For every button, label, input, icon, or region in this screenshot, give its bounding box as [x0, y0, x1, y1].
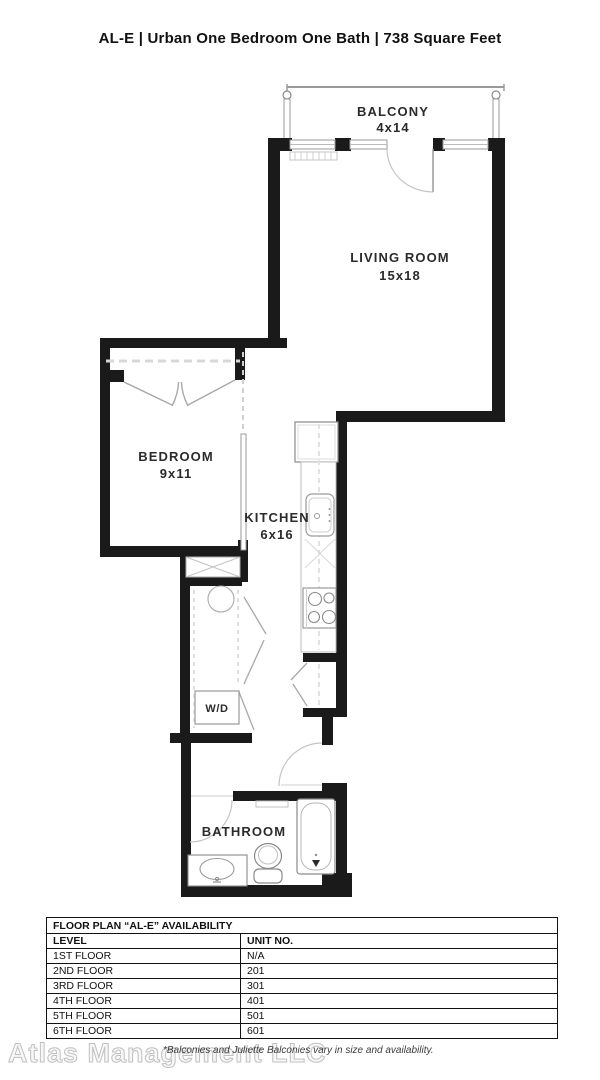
bathroom-label: BATHROOM — [202, 824, 286, 839]
bedroom-label: BEDROOM — [138, 449, 214, 464]
entry-door-swing-arc — [279, 743, 322, 786]
balcony-door-swing-arc — [387, 149, 433, 192]
column-header-unit: UNIT NO. — [241, 934, 558, 949]
pantry-bifold-door — [291, 663, 307, 706]
kitchen-sink — [306, 494, 334, 536]
floor-plan-drawing: BALCONY 4x14 — [0, 0, 600, 910]
stove — [303, 588, 336, 628]
refrigerator — [295, 422, 338, 462]
unit-cell: 601 — [241, 1024, 558, 1039]
windows — [290, 140, 488, 160]
living-room: LIVING ROOM 15x18 — [350, 149, 450, 283]
french-doors — [124, 380, 235, 406]
kitchen-label: KITCHEN — [244, 510, 309, 525]
kitchen: KITCHEN 6x16 — [244, 422, 338, 706]
bathtub — [297, 799, 335, 874]
table-row: 3RD FLOOR 301 — [47, 979, 558, 994]
balcony-dimension: 4x14 — [376, 120, 409, 135]
balcony-label: BALCONY — [357, 104, 429, 119]
level-cell: 3RD FLOOR — [47, 979, 241, 994]
entry-door — [279, 743, 322, 786]
living-room-dimension: 15x18 — [379, 268, 421, 283]
table-title-row: FLOOR PLAN “AL-E” AVAILABILITY — [47, 918, 558, 934]
kitchen-dimension: 6x16 — [260, 527, 293, 542]
table-header-row: LEVEL UNIT NO. — [47, 934, 558, 949]
bathroom: BATHROOM — [188, 796, 335, 886]
water-heater — [208, 586, 234, 612]
balcony-post-icon — [283, 91, 291, 99]
washer-dryer-label: W/D — [205, 703, 228, 715]
living-room-label: LIVING ROOM — [350, 250, 450, 265]
availability-table: FLOOR PLAN “AL-E” AVAILABILITY LEVEL UNI… — [46, 917, 558, 1039]
bedroom-dimension: 9x11 — [160, 466, 193, 481]
unit-cell: 401 — [241, 994, 558, 1009]
bathroom-shelf — [256, 801, 288, 807]
floor-plan-page: AL-E | Urban One Bedroom One Bath | 738 … — [0, 0, 600, 1080]
unit-cell: N/A — [241, 949, 558, 964]
level-cell: 5TH FLOOR — [47, 1009, 241, 1024]
level-cell: 1ST FLOOR — [47, 949, 241, 964]
unit-cell: 201 — [241, 964, 558, 979]
table-row: 6TH FLOOR 601 — [47, 1024, 558, 1039]
table-row: 1ST FLOOR N/A — [47, 949, 558, 964]
level-cell: 6TH FLOOR — [47, 1024, 241, 1039]
table-row: 5TH FLOOR 501 — [47, 1009, 558, 1024]
unit-cell: 501 — [241, 1009, 558, 1024]
column-header-level: LEVEL — [47, 934, 241, 949]
table-row: 4TH FLOOR 401 — [47, 994, 558, 1009]
unit-cell: 301 — [241, 979, 558, 994]
level-cell: 4TH FLOOR — [47, 994, 241, 1009]
level-cell: 2ND FLOOR — [47, 964, 241, 979]
bathroom-sink — [188, 855, 247, 886]
balcony-post-icon — [492, 91, 500, 99]
bedroom: BEDROOM 9x11 — [106, 352, 246, 550]
toilet — [254, 844, 282, 884]
table-row: 2ND FLOOR 201 — [47, 964, 558, 979]
table-title: FLOOR PLAN “AL-E” AVAILABILITY — [47, 918, 558, 934]
closet-bifold-door — [239, 597, 266, 730]
balcony-disclaimer-note: *Balconies and Juliette Balconies vary i… — [163, 1045, 434, 1056]
balcony: BALCONY 4x14 — [283, 84, 504, 139]
bedroom-partition-wall — [241, 434, 246, 550]
